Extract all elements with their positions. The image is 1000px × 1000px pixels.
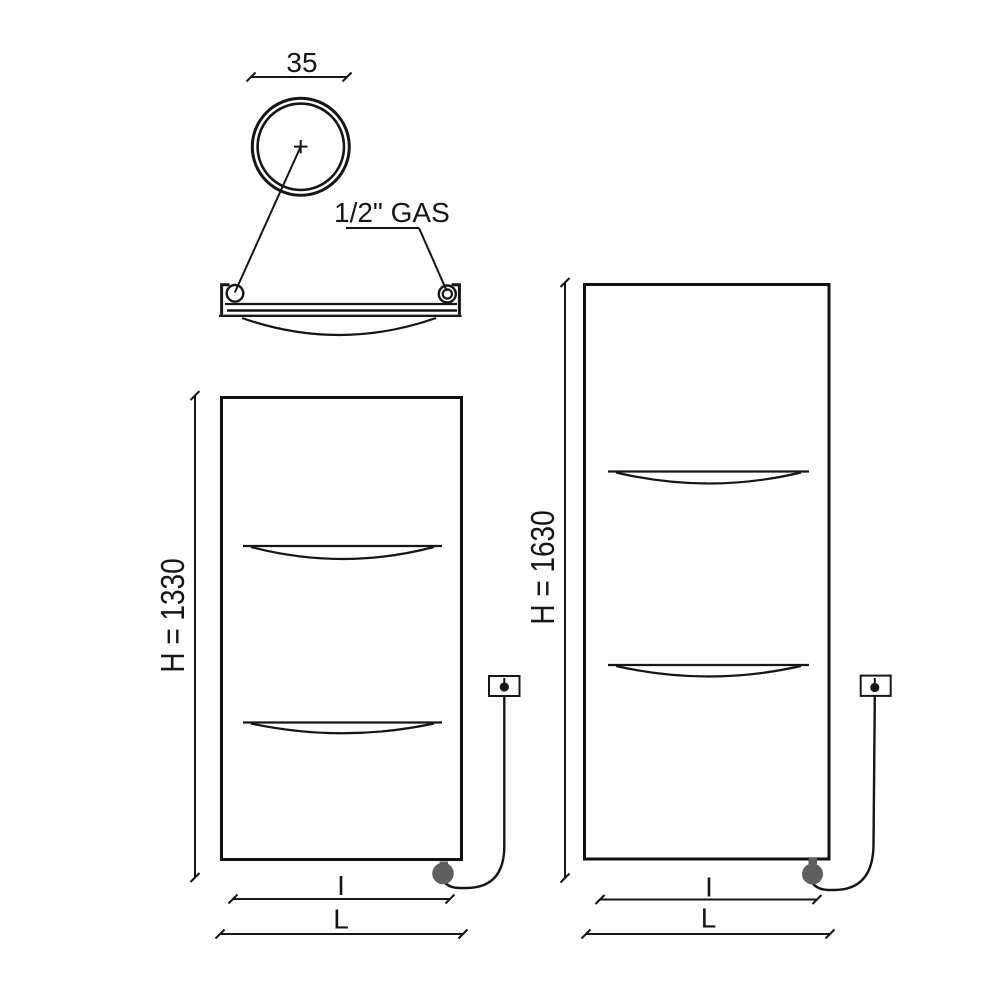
svg-text:L: L [333,904,349,935]
svg-text:1/2" GAS: 1/2" GAS [334,197,450,228]
svg-text:35: 35 [286,47,317,78]
svg-text:I: I [337,870,345,901]
svg-text:L: L [701,903,717,934]
svg-text:H = 1330: H = 1330 [154,558,192,672]
svg-text:H = 1630: H = 1630 [524,510,562,624]
svg-text:I: I [705,872,713,903]
